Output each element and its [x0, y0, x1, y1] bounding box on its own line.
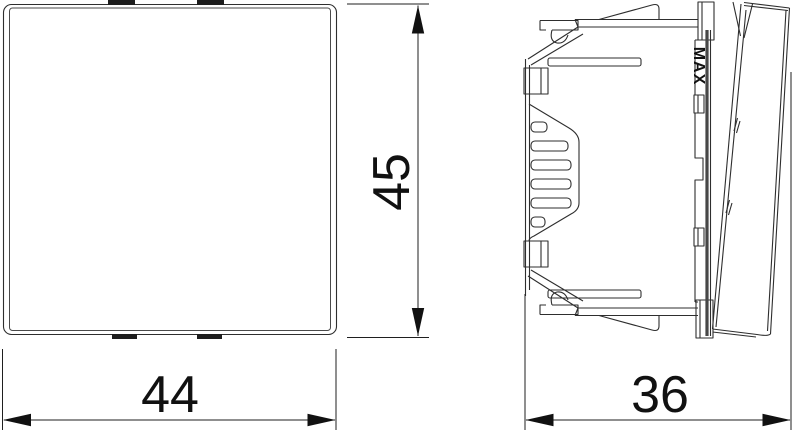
plate-front-edge [768, 8, 790, 334]
front-outer-frame [4, 5, 337, 335]
dimension-width-value: 44 [141, 366, 199, 424]
front-wall-middle [695, 113, 703, 228]
top-plate [575, 20, 698, 28]
plate-pivot-lines [733, 2, 753, 38]
dimension-front-width: 44 [3, 349, 337, 430]
bottom-claw-arm [540, 305, 578, 315]
bottom-gusset [599, 316, 659, 331]
dimension-depth-value: 36 [631, 366, 689, 424]
top-diagonal-band [528, 27, 583, 65]
vent-slot [531, 160, 571, 170]
plate-inner-line [716, 10, 746, 327]
technical-drawing-canvas: MAX 44 45 36 [0, 0, 794, 432]
mounting-tab-bottom-left [112, 334, 137, 339]
vent-slot [531, 198, 571, 208]
arrowhead-left [3, 414, 31, 426]
bottom-shelf [548, 290, 641, 298]
vent-slot [531, 141, 568, 151]
front-clip-upper [694, 95, 704, 113]
arrowhead-up [412, 6, 424, 34]
front-clip-lower [694, 228, 704, 246]
vent-housing-outline [529, 104, 579, 241]
drawing-svg: MAX 44 45 36 [0, 0, 794, 432]
dimension-height-value: 45 [363, 153, 421, 211]
top-claw-arm [540, 21, 578, 31]
arrowhead-right [308, 414, 336, 426]
top-claw-hook [551, 30, 568, 43]
front-view [4, 0, 337, 339]
vent-slot [531, 122, 547, 132]
top-shelf [548, 58, 641, 66]
side-view: MAX [524, 2, 790, 338]
bottom-plate [575, 308, 698, 316]
front-wall-lower [695, 246, 698, 302]
front-inner-frame [10, 8, 331, 331]
top-back-box [524, 68, 548, 94]
max-label: MAX [690, 47, 707, 86]
top-gusset [599, 5, 659, 20]
bottom-back-box [524, 241, 548, 267]
mounting-tab-top-left [108, 0, 135, 5]
mounting-tab-bottom-right [197, 334, 222, 339]
bottom-diagonal-band [528, 270, 583, 308]
plate-back-edge [713, 4, 742, 329]
plate-bottom-edge [713, 329, 771, 337]
mounting-tab-top-right [197, 0, 224, 5]
arrowhead-right [763, 414, 791, 426]
dimension-front-height: 45 [347, 4, 429, 338]
vent-slot [531, 179, 571, 189]
vent-slot [531, 217, 545, 227]
arrowhead-down [412, 308, 424, 336]
arrowhead-left [526, 414, 554, 426]
